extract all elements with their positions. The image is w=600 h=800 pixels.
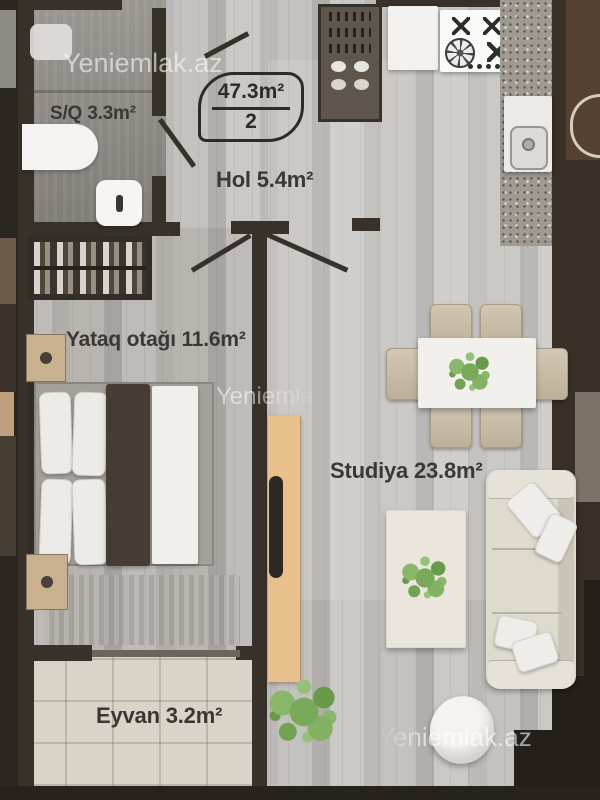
floorplan: Yeniemlak.az Yeniemlak.az Yeniemlak.az S… — [0, 0, 600, 800]
sofa-backrest — [558, 478, 574, 680]
dining-chair — [430, 404, 472, 448]
bedroom-balcony-wall — [18, 645, 92, 661]
kitchen-sink — [504, 96, 552, 172]
coffee-table-plant-icon — [415, 568, 434, 587]
faucet-icon — [522, 138, 535, 151]
area-badge-total: 47.3m² — [212, 80, 291, 109]
shelf-bowls-row — [329, 79, 371, 91]
bathtub — [22, 124, 98, 170]
shelf-bottles-row — [329, 28, 371, 37]
watermark-middle: Yeniemlak.az — [216, 383, 358, 411]
dining-chair — [480, 404, 522, 448]
bed-white-runner — [152, 386, 198, 564]
room-label-hall: Hol 5.4m² — [216, 167, 313, 193]
exterior-patch-2 — [0, 304, 16, 392]
bed-pillow — [39, 478, 74, 565]
burner-icon — [452, 17, 470, 35]
nightstand-knob — [41, 576, 53, 588]
room-label-bedroom: Yataq otağı 11.6m² — [66, 328, 246, 352]
exterior-patch-3 — [0, 392, 14, 436]
shelf-unit — [318, 4, 382, 122]
area-badge-units: 2 — [245, 110, 257, 134]
exterior-patch-1 — [0, 238, 16, 304]
bowl-icon — [331, 61, 346, 72]
toilet-flush-mark — [116, 195, 123, 212]
burner-icon — [483, 17, 501, 35]
room-label-studio: Studiya 23.8m² — [330, 458, 482, 484]
shower-divider-line — [18, 90, 152, 93]
right-band-patch — [575, 392, 600, 502]
table-plant-icon — [461, 363, 479, 381]
exterior-appliance — [0, 10, 16, 88]
bed-pillow — [39, 391, 74, 474]
hall-right-wall-stub — [352, 218, 380, 231]
bathroom-bottom-wall — [18, 222, 180, 236]
stove-knobs — [468, 64, 473, 69]
kitchen-counter — [388, 6, 438, 70]
nightstand-knob — [40, 352, 52, 364]
wardrobe-rail — [34, 266, 146, 270]
balcony-window-line — [92, 650, 240, 657]
shelf-bottles-row — [329, 12, 371, 21]
bowl-icon — [354, 79, 369, 90]
shelf-bottles-row — [329, 44, 371, 53]
bowl-icon — [354, 61, 369, 72]
shelf-bowls-row — [329, 61, 371, 73]
nightstand — [26, 334, 66, 382]
wardrobe — [28, 236, 152, 300]
curtain — [44, 575, 240, 645]
floor-plant-icon — [290, 698, 319, 727]
bed-pillow — [72, 478, 109, 565]
bottom-wall — [0, 786, 600, 800]
room-label-bathroom: S/Q 3.3m² — [50, 103, 136, 125]
area-badge: 47.3m² 2 — [198, 72, 304, 142]
nightstand — [26, 554, 68, 610]
bed-dark-blanket — [106, 384, 150, 566]
bed-pillow — [72, 391, 109, 476]
watermark-bottom: Yeniemlak.az — [378, 722, 532, 753]
tv — [269, 476, 283, 578]
sofa-seam — [492, 612, 562, 614]
exterior-patch-4 — [0, 436, 16, 556]
bowl-icon — [331, 79, 346, 90]
room-label-balcony: Eyvan 3.2m² — [96, 703, 222, 729]
top-left-wall — [30, 0, 122, 10]
watermark-top: Yeniemlak.az — [63, 48, 223, 79]
bedroom-studio-wall — [252, 221, 267, 786]
